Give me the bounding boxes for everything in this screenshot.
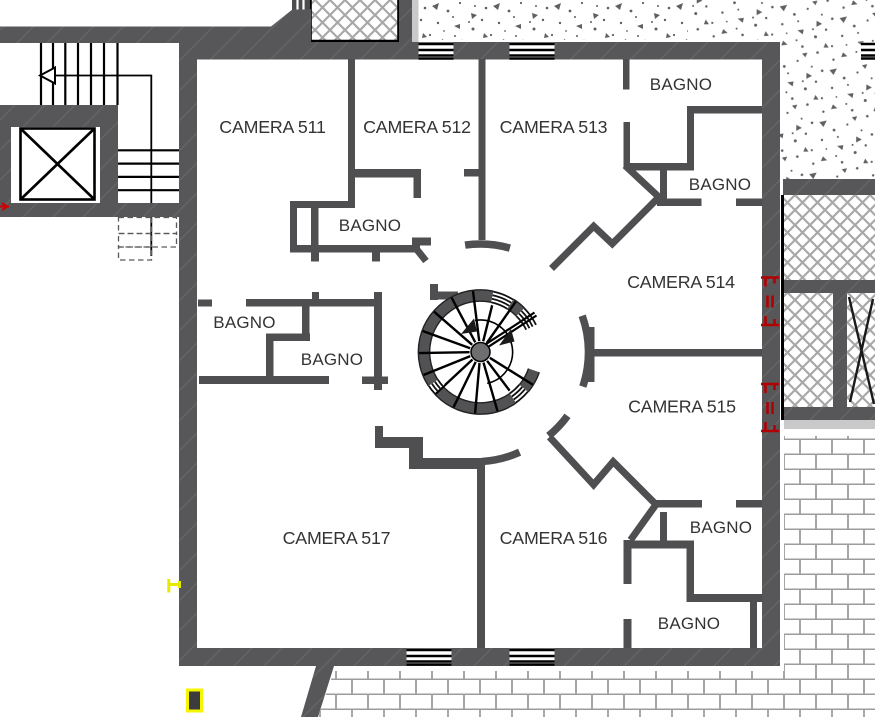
svg-text:CAMERA 512: CAMERA 512 — [363, 117, 471, 137]
svg-text:CAMERA 514: CAMERA 514 — [627, 272, 735, 292]
svg-text:CAMERA 511: CAMERA 511 — [219, 117, 326, 137]
svg-text:BAGNO: BAGNO — [650, 75, 712, 94]
svg-text:BAGNO: BAGNO — [339, 216, 401, 235]
svg-text:BAGNO: BAGNO — [213, 313, 275, 332]
svg-text:CAMERA 517: CAMERA 517 — [283, 528, 391, 548]
svg-text:BAGNO: BAGNO — [658, 614, 720, 633]
svg-text:BAGNO: BAGNO — [690, 518, 752, 537]
svg-text:CAMERA 516: CAMERA 516 — [500, 528, 608, 548]
svg-text:CAMERA 515: CAMERA 515 — [628, 397, 736, 417]
svg-text:BAGNO: BAGNO — [301, 350, 363, 369]
svg-text:BAGNO: BAGNO — [689, 175, 751, 194]
svg-text:CAMERA 513: CAMERA 513 — [500, 117, 608, 137]
